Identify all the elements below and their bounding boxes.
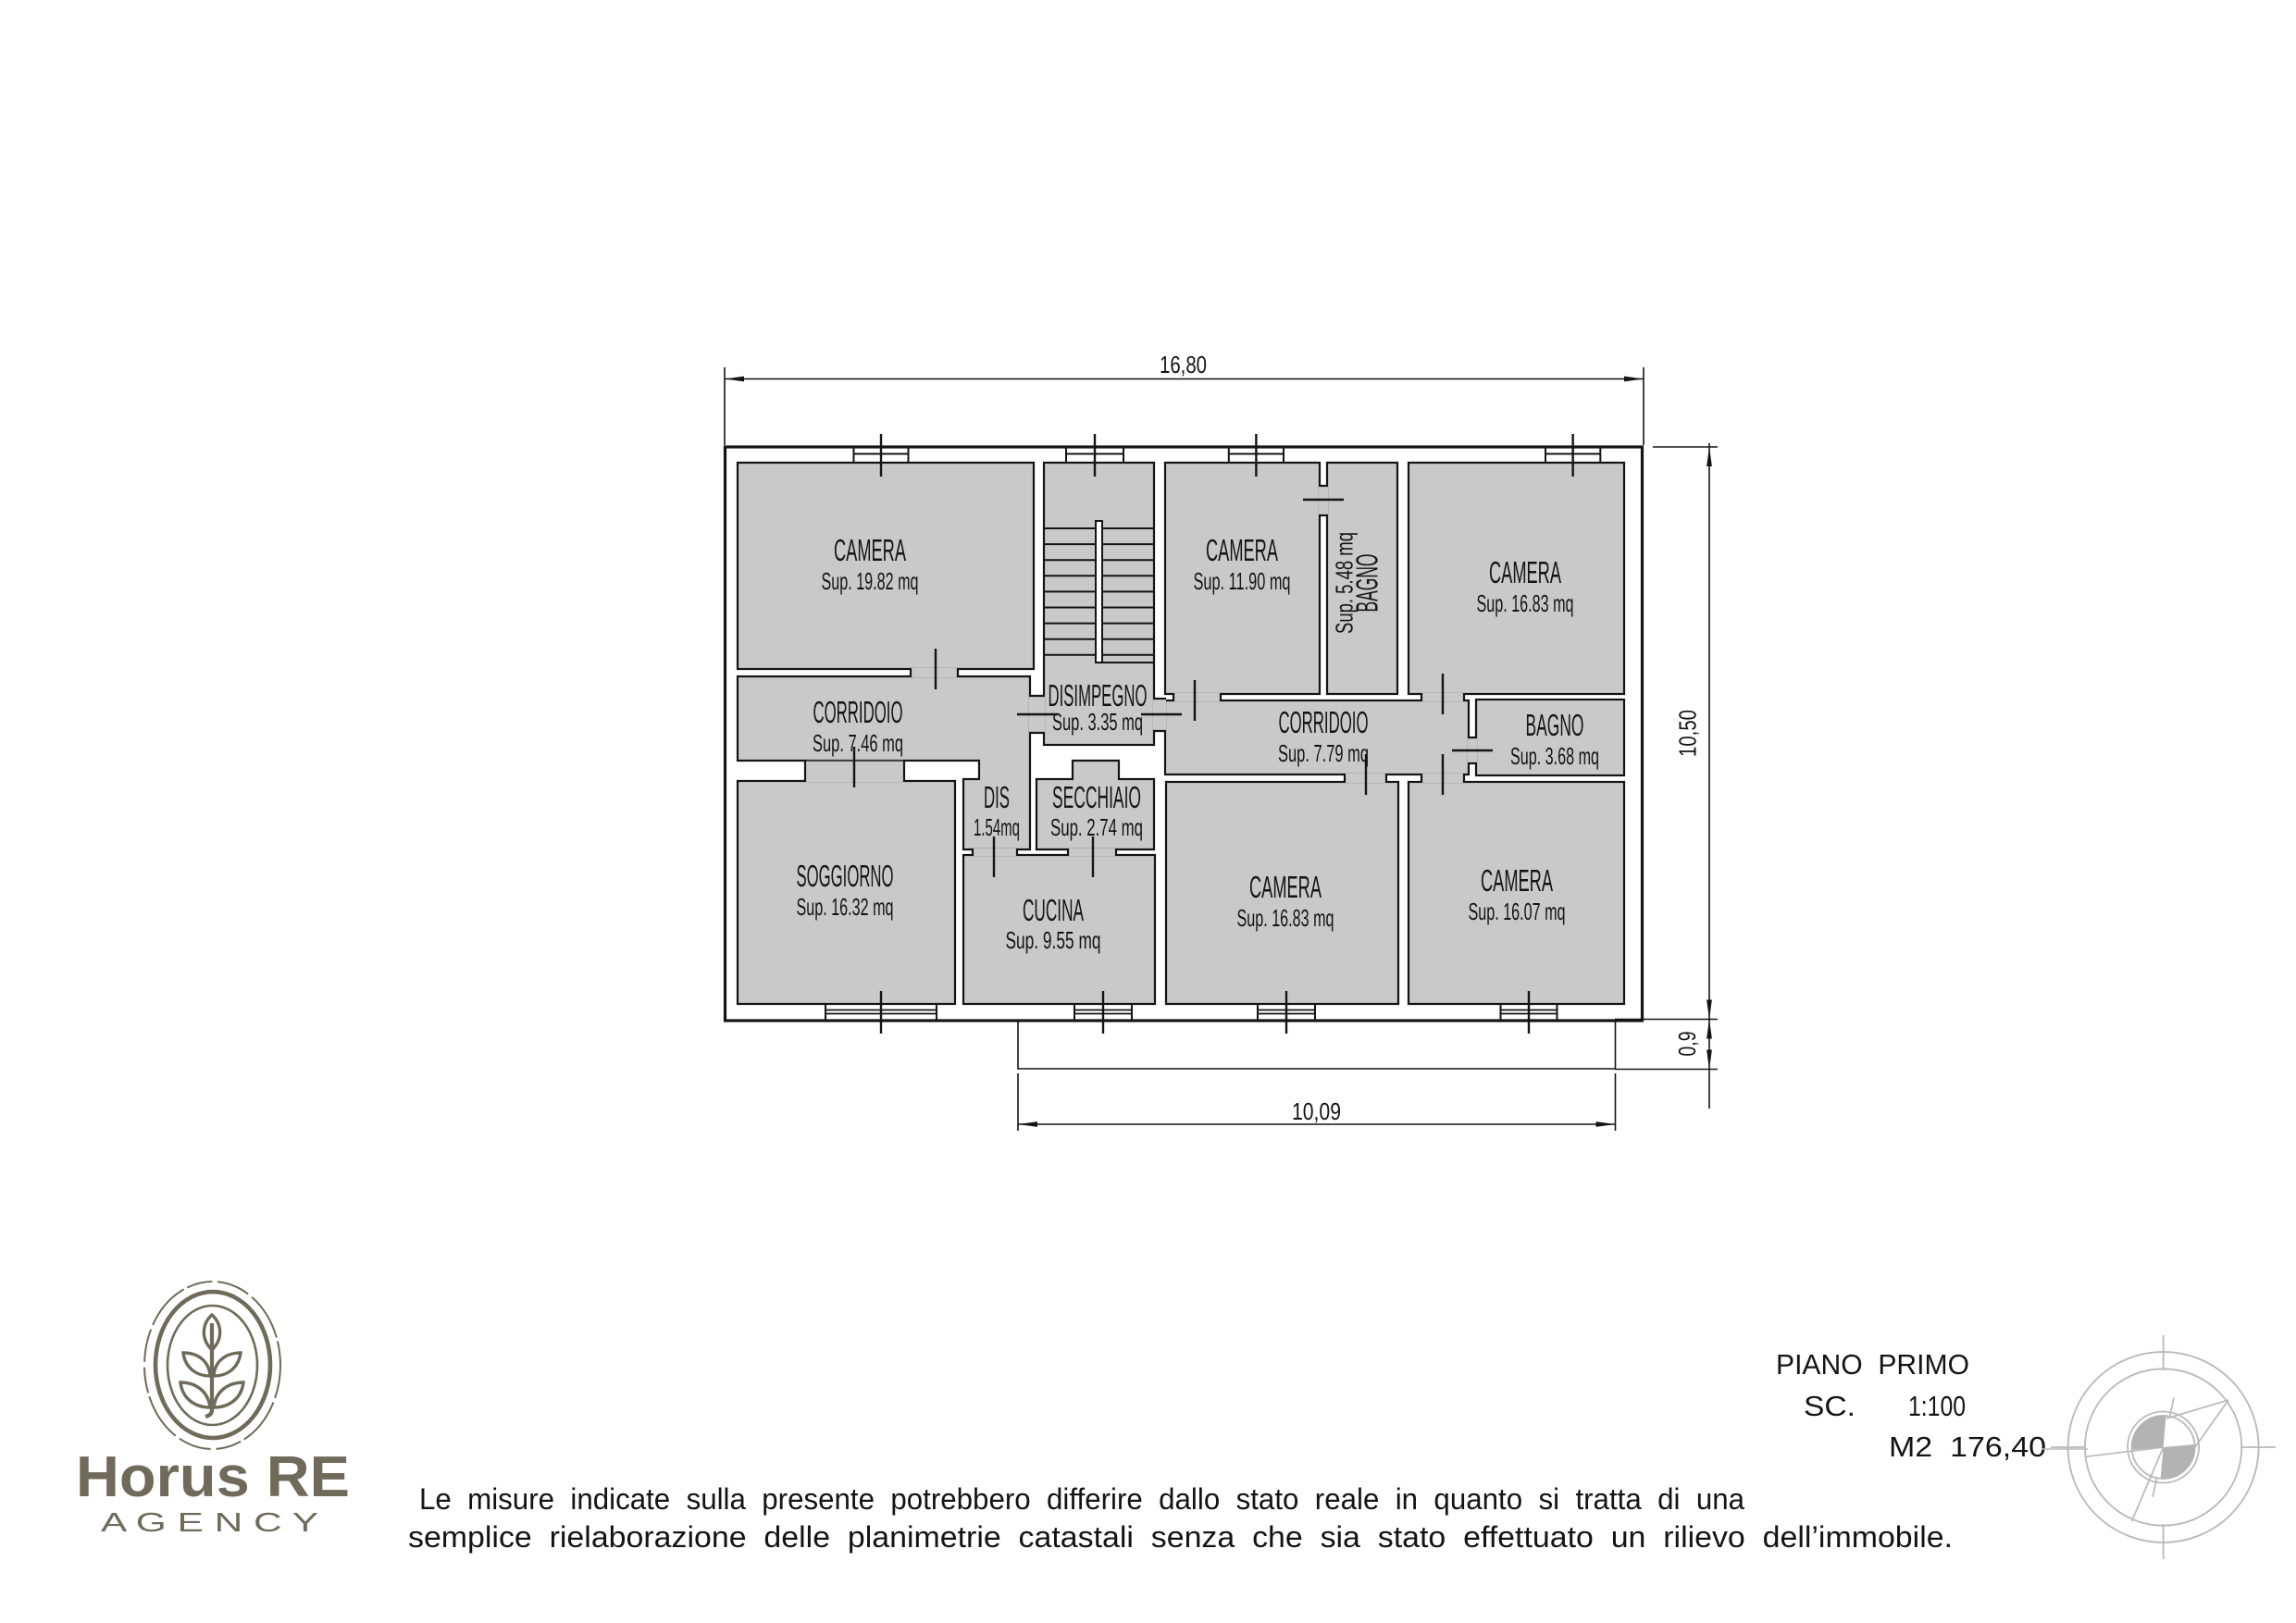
svg-text:CAMERA: CAMERA <box>1489 555 1561 589</box>
svg-text:Sup. 16.32 mq: Sup. 16.32 mq <box>797 893 894 921</box>
svg-text:Sup. 16.83 mq: Sup. 16.83 mq <box>1237 904 1334 932</box>
svg-text:BAGNO: BAGNO <box>1526 708 1584 742</box>
svg-text:CAMERA: CAMERA <box>1206 533 1278 567</box>
svg-text:1.54mq: 1.54mq <box>974 813 1020 841</box>
svg-text:Sup. 7.79 mq: Sup. 7.79 mq <box>1278 739 1369 767</box>
svg-text:Sup. 9.55 mq: Sup. 9.55 mq <box>1006 926 1101 954</box>
svg-text:Sup. 11.90 mq: Sup. 11.90 mq <box>1194 567 1291 595</box>
svg-text:CORRIDOIO: CORRIDOIO <box>813 695 903 729</box>
svg-text:DIS: DIS <box>984 780 1010 814</box>
svg-text:16,80: 16,80 <box>1160 351 1207 378</box>
svg-text:10,09: 10,09 <box>1292 1097 1341 1125</box>
svg-text:Sup. 7.46 mq: Sup. 7.46 mq <box>813 729 903 757</box>
svg-text:CAMERA: CAMERA <box>1481 863 1553 898</box>
svg-text:PIANO PRIMO: PIANO PRIMO <box>1776 1348 1969 1381</box>
svg-text:CORRIDOIO: CORRIDOIO <box>1279 705 1369 739</box>
svg-text:Sup. 2.74 mq: Sup. 2.74 mq <box>1050 813 1143 841</box>
svg-text:CAMERA: CAMERA <box>834 533 906 567</box>
svg-text:Sup. 16.07 mq: Sup. 16.07 mq <box>1469 898 1566 925</box>
svg-text:Sup. 3.68 mq: Sup. 3.68 mq <box>1510 742 1599 770</box>
svg-text:Sup. 16.83 mq: Sup. 16.83 mq <box>1477 589 1574 617</box>
svg-text:Le misure indicate sulla p: Le misure indicate sulla presente potreb… <box>419 1482 1744 1516</box>
svg-text:Horus RE: Horus RE <box>76 1445 350 1509</box>
svg-text:SOGGIORNO: SOGGIORNO <box>797 859 894 893</box>
svg-text:M2 176,40: M2 176,40 <box>1889 1431 2046 1463</box>
svg-text:0,9: 0,9 <box>1673 1032 1701 1057</box>
svg-text:CUCINA: CUCINA <box>1023 893 1084 927</box>
svg-text:semplice rielaborazione dell: semplice rielaborazione delle planimetri… <box>408 1520 1953 1554</box>
svg-text:10,50: 10,50 <box>1674 710 1702 757</box>
svg-text:1:100: 1:100 <box>1908 1390 1966 1422</box>
svg-text:Sup. 19.82 mq: Sup. 19.82 mq <box>822 567 919 595</box>
svg-text:Sup. 5.48 mq: Sup. 5.48 mq <box>1331 532 1359 634</box>
svg-text:SECCHIAIO: SECCHIAIO <box>1052 780 1141 814</box>
svg-text:Sup. 3.35 mq: Sup. 3.35 mq <box>1052 708 1143 736</box>
svg-text:SC.: SC. <box>1804 1390 1855 1422</box>
svg-text:A G E N C Y: A G E N C Y <box>101 1508 318 1538</box>
svg-text:CAMERA: CAMERA <box>1249 870 1322 904</box>
